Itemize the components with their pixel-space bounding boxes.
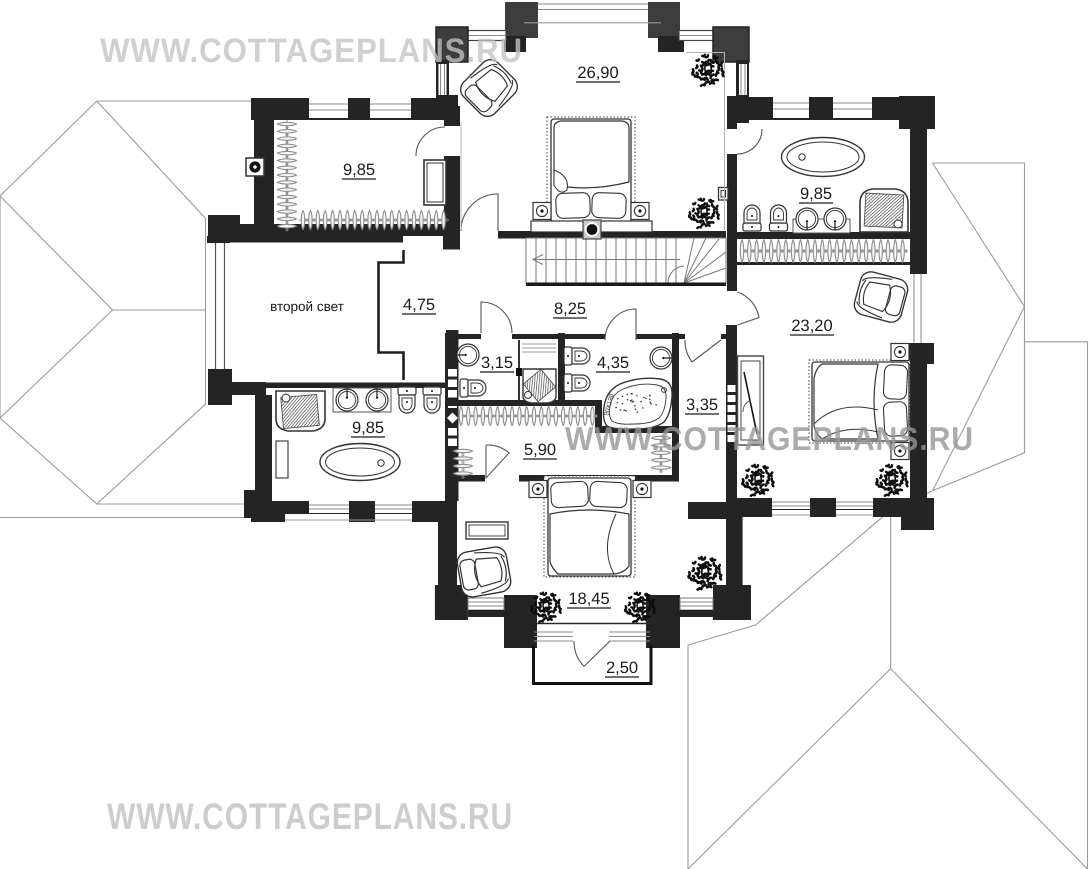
svg-text:WWW.COTTAGEPLANS.RU: WWW.COTTAGEPLANS.RU [565, 420, 974, 457]
svg-text:9,85: 9,85 [800, 185, 832, 203]
svg-text:2,50: 2,50 [606, 659, 638, 677]
svg-text:8,25: 8,25 [554, 300, 586, 318]
svg-text:9,85: 9,85 [352, 419, 384, 437]
svg-text:26,90: 26,90 [577, 64, 618, 82]
svg-text:4,35: 4,35 [597, 354, 629, 372]
svg-text:9,85: 9,85 [343, 161, 375, 179]
svg-text:18,45: 18,45 [568, 590, 609, 608]
svg-text:WWW.COTTAGEPLANS.RU: WWW.COTTAGEPLANS.RU [100, 32, 523, 70]
svg-text:3,35: 3,35 [686, 396, 718, 414]
svg-text:второй свет: второй свет [270, 299, 344, 314]
svg-text:5,90: 5,90 [524, 441, 556, 459]
svg-text:3,15: 3,15 [481, 354, 513, 372]
svg-text:WWW.COTTAGEPLANS.RU: WWW.COTTAGEPLANS.RU [107, 796, 513, 837]
svg-text:23,20: 23,20 [791, 317, 832, 335]
svg-text:4,75: 4,75 [403, 296, 435, 314]
